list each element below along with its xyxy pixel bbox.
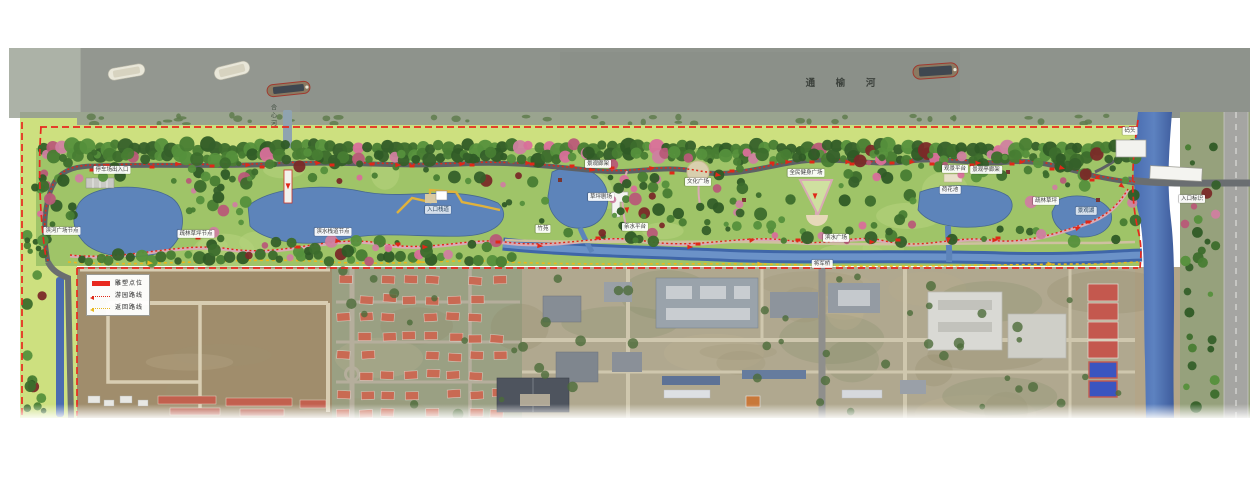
- entrance-building: [1150, 166, 1203, 182]
- sculpture-point: [850, 163, 855, 166]
- sculpture-point: [370, 163, 375, 166]
- sculpture-point: [1090, 179, 1095, 182]
- sculpture-point: [930, 163, 935, 166]
- left-margin-top: [0, 48, 9, 118]
- sculpture-point: [1010, 163, 1015, 166]
- sculpture-point: [496, 241, 501, 244]
- sculpture-point: [296, 246, 301, 249]
- sculpture-point: [210, 165, 215, 168]
- sculpture-point: [1050, 168, 1055, 171]
- sculpture-point: [890, 162, 895, 165]
- sculpture-point: [896, 239, 901, 242]
- sculpture-point: [796, 239, 801, 242]
- left-margin: [0, 118, 20, 500]
- map-artwork: [0, 0, 1250, 500]
- sculpture-point: [970, 164, 975, 167]
- sculpture-point: [730, 170, 735, 173]
- west-ditch: [56, 277, 64, 417]
- park-master-plan: 通 榆 河 雕塑点位 游园路线 返回路线 停车场出入口滨河广场节点疏林草坪节点滨…: [0, 0, 1250, 500]
- sculpture-point: [1086, 221, 1091, 224]
- sculpture-point: [396, 243, 401, 246]
- sculpture-point: [696, 243, 701, 246]
- sculpture-point: [570, 165, 575, 168]
- sculpture-point: [610, 167, 615, 170]
- sculpture-point: [470, 164, 475, 167]
- sculpture-point: [196, 237, 201, 240]
- sculpture-point: [410, 165, 415, 168]
- sculpture-point: [150, 166, 155, 169]
- bottom-fade: [0, 404, 1250, 420]
- ship: [913, 62, 959, 79]
- bottom-margin: [0, 418, 1250, 500]
- top-margin: [0, 0, 1250, 48]
- sculpture-point: [530, 163, 535, 166]
- sculpture-point: [670, 172, 675, 175]
- dock-building: [1116, 140, 1146, 157]
- sculpture-point: [810, 161, 815, 164]
- sculpture-point: [90, 169, 95, 172]
- sculpture-point: [330, 164, 335, 167]
- big-river: [9, 48, 1250, 118]
- sculpture-point: [596, 237, 601, 240]
- sculpture-point: [260, 166, 265, 169]
- sculpture-point: [996, 237, 1001, 240]
- sculpture-point: [770, 162, 775, 165]
